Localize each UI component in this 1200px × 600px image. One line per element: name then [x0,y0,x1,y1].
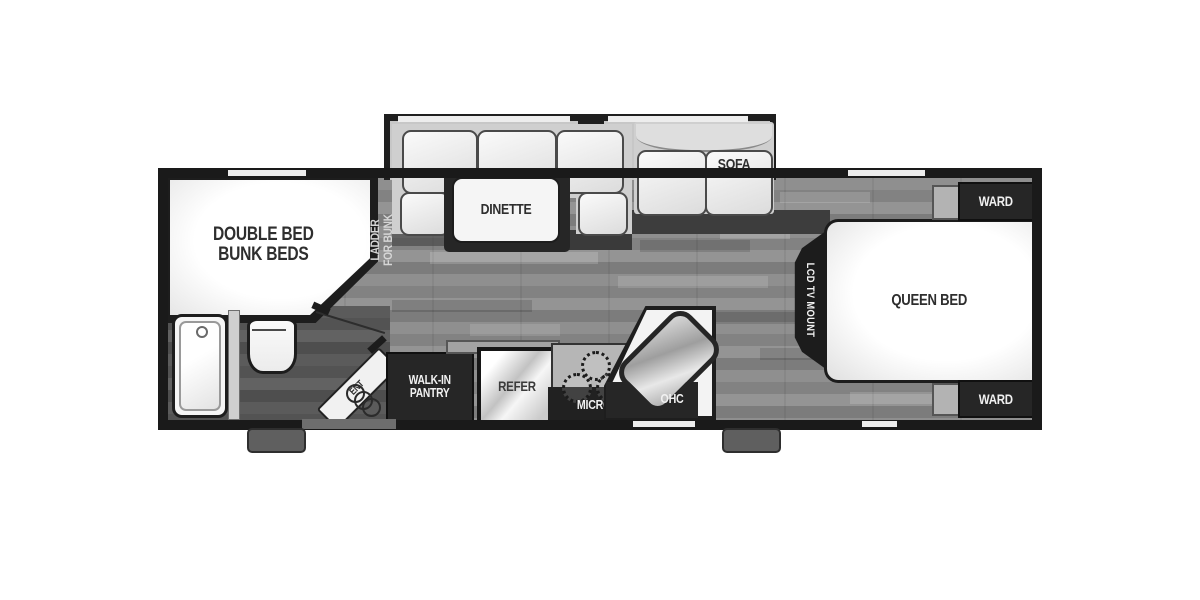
slide-window-left [398,116,570,122]
entry-doorway [302,419,396,429]
entry-step-right [722,428,781,453]
window-top-left [228,170,306,176]
floor-plan: DINETTE SOFA DOUBLE BED BUNK BEDS LADDER… [0,0,1200,600]
window-bottom-right [862,421,897,427]
window-top-right [848,170,925,176]
sofa-back [636,124,772,152]
window-bottom-center [633,421,695,427]
trailer-body-wall [158,168,1042,430]
entry-step-left [247,428,306,453]
